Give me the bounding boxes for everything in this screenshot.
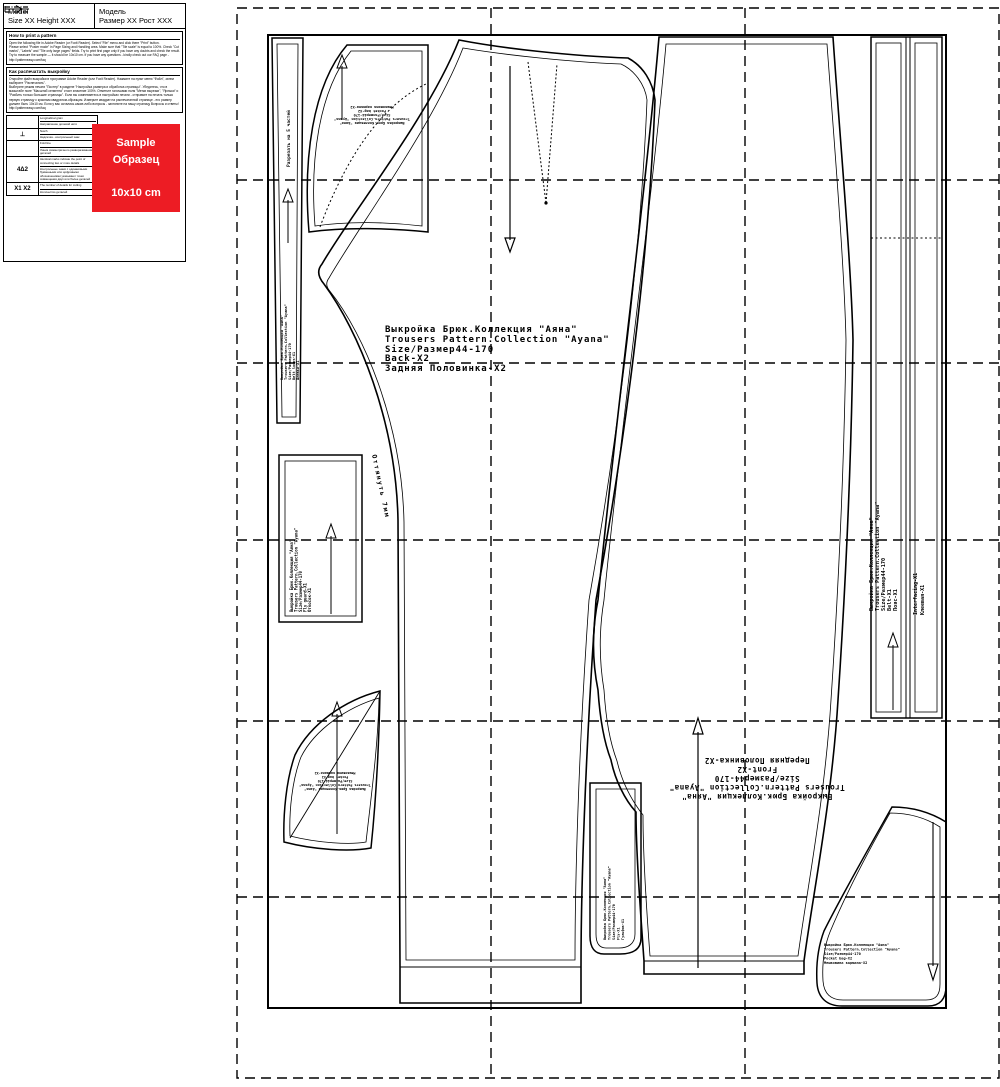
piece-pocket-bag-bottom-right xyxy=(817,807,946,1006)
label-front-half: Выкройка Брюк.Коллекция "Аяна" Trousers … xyxy=(669,756,845,801)
fold-line-icon xyxy=(4,4,30,16)
print-page-grid xyxy=(237,8,999,1078)
svg-text:Мешковина кармана-Х2: Мешковина кармана-Х2 xyxy=(350,105,393,109)
model-size-en: Size XX Height XXX xyxy=(8,16,90,25)
svg-text:Size/Размер44-170: Size/Размер44-170 xyxy=(612,904,616,940)
print-instructions-en-body: Open the following file in Adobe Reader … xyxy=(9,41,180,62)
print-instructions-ru-title: Как распечатать выкройку xyxy=(9,69,180,76)
grain-arrow-up xyxy=(283,189,293,243)
details-count-icon: X1 X2 xyxy=(7,183,39,196)
svg-text:Trousers Pattern.Collection "A: Trousers Pattern.Collection "Ayana" xyxy=(608,866,612,940)
svg-text:Trousers Pattern.Collection "A: Trousers Pattern.Collection "Ayana" xyxy=(669,783,845,792)
grain-arrow-up xyxy=(332,702,342,834)
svg-text:Front-X2: Front-X2 xyxy=(737,765,777,774)
svg-text:Мешковина кармана-Х2: Мешковина кармана-Х2 xyxy=(315,771,356,775)
fold-dotted-line xyxy=(320,83,428,227)
print-instructions-ru: Как распечатать выкройку Откройте файл в… xyxy=(6,67,183,113)
legend-row-notch: ⊥ Notch Надсечка - контрольный знак xyxy=(7,128,98,141)
grain-arrow-down xyxy=(928,822,938,980)
svg-text:Выкройка Брюк.Коллекция "Аяна": Выкройка Брюк.Коллекция "Аяна" xyxy=(682,792,832,801)
legend-row-fold: Fold line Линия симметричного разворачив… xyxy=(7,141,98,157)
print-instructions-ru-body: Откройте файл выкройки в программе Adobe… xyxy=(9,77,180,110)
svg-text:Trousers Pattern.Collection "A: Trousers Pattern.Collection "Ayana" xyxy=(385,334,610,345)
svg-text:Пояс-Х1: Пояс-Х1 xyxy=(893,589,899,611)
label-interfacing: Interfacing-X1 Клеевая-Х1 xyxy=(913,573,926,615)
svg-text:Выкройка Брюк.Коллекция "Аяна": Выкройка Брюк.Коллекция "Аяна" xyxy=(603,877,607,940)
label-pocket-bag-top: Выкройка Брюк.Коллекция "Аяна" Trousers … xyxy=(334,105,410,125)
svg-text:Клеевая-Х1: Клеевая-Х1 xyxy=(920,585,926,615)
svg-text:Откосок-Х1: Откосок-Х1 xyxy=(307,587,312,612)
legend-table: Longitudinal grain Направление долевой н… xyxy=(6,115,98,196)
sample-square-line3: 10x10 cm xyxy=(111,185,161,202)
svg-text:Trousers Pattern.Collection "A: Trousers Pattern.Collection "Ayana" xyxy=(824,948,900,952)
piece-front-half xyxy=(594,37,854,974)
legend-row-grain: Longitudinal grain Направление долевой н… xyxy=(7,116,98,129)
pattern-sheet-page: Выкройка Брюк.Коллекция "Аяна" Trousers … xyxy=(0,0,1000,1087)
label-pocket-bag-bottom-right: Выкройка Брюк.Коллекция "Аяна" Trousers … xyxy=(824,943,900,965)
svg-text:Fly-X1: Fly-X1 xyxy=(617,927,621,940)
dart-dotted xyxy=(528,62,557,203)
svg-text:Шлёвки-Х1: Шлёвки-Х1 xyxy=(296,361,300,380)
print-instructions-en-title: How to print a pattern xyxy=(9,33,180,40)
svg-text:Выкройка Брюк.Коллекция "Аяна": Выкройка Брюк.Коллекция "Аяна" xyxy=(385,325,578,335)
svg-text:Size/Размер44-170: Size/Размер44-170 xyxy=(714,774,799,783)
svg-text:Back-X2: Back-X2 xyxy=(385,354,430,364)
notch-icon: ⊥ xyxy=(7,128,39,141)
piece-pocket-bag-bottom-left xyxy=(284,691,380,850)
sample-square-line1: Sample xyxy=(116,135,155,152)
model-label-ru: Модель xyxy=(99,7,181,16)
label-belt-loops: Выкройка Брюк.Коллекция "Аяна" Trousers … xyxy=(280,304,300,380)
svg-text:Мешковина кармана-Х2: Мешковина кармана-Х2 xyxy=(824,961,867,965)
piece-belt xyxy=(871,37,942,718)
note-cut: Разрезать на 5 частей xyxy=(286,110,292,167)
identical-marks-icon: 4Δ2 xyxy=(7,157,39,183)
svg-text:Pocket bag-X2: Pocket bag-X2 xyxy=(824,957,852,961)
grain-arrow-up xyxy=(337,55,347,120)
piece-pocket-bag-top xyxy=(307,45,428,232)
svg-text:Гульфик-Х1: Гульфик-Х1 xyxy=(621,919,625,940)
svg-text:Выкройка Брюк.Коллекция "Аяна": Выкройка Брюк.Коллекция "Аяна" xyxy=(824,943,889,947)
svg-text:Interfacing-X1: Interfacing-X1 xyxy=(913,573,919,615)
svg-text:Задняя Половинка-Х2: Задняя Половинка-Х2 xyxy=(385,364,507,374)
piece-back-half xyxy=(319,40,655,1003)
sample-square: Sample Образец 10x10 cm xyxy=(92,124,180,212)
label-pocket-bag-bottom-left: Выкройка Брюк.Коллекция "Аяна" Trousers … xyxy=(299,771,370,791)
print-instructions-en: How to print a pattern Open the followin… xyxy=(6,31,183,65)
label-back-half: Выкройка Брюк.Коллекция "Аяна" Trousers … xyxy=(385,325,610,374)
svg-text:Передняя Половинка-Х2: Передняя Половинка-Х2 xyxy=(704,756,809,765)
svg-text:Size/Размер44-170: Size/Размер44-170 xyxy=(824,952,861,956)
label-belt: Выкройка Брюк.Коллекция "Аяна" Trousers … xyxy=(869,502,899,611)
label-fly: Выкройка Брюк.Коллекция "Аяна" Trousers … xyxy=(603,866,625,940)
model-header: Model Size XX Height XXX Модель Размер X… xyxy=(4,4,185,29)
grain-arrow-up xyxy=(888,633,898,710)
legend-row-count: X1 X2 The number of details for cutting … xyxy=(7,183,98,196)
legend-row-marks: 4Δ2 Identical marks indicate the point o… xyxy=(7,157,98,183)
model-size-ru: Размер XX Рост XXX xyxy=(99,16,181,25)
note-stretch: Оттянуть 7мм xyxy=(370,454,391,519)
grain-arrow-up xyxy=(326,524,336,614)
sample-square-line2: Образец xyxy=(113,152,160,169)
grain-arrow-up xyxy=(693,718,703,968)
grain-arrow-down xyxy=(505,66,515,252)
